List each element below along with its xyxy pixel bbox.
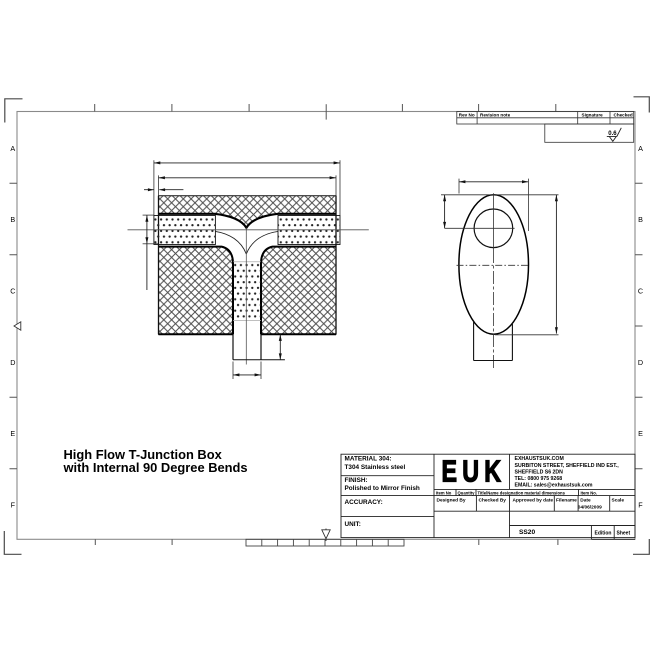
- svg-text:B: B: [638, 215, 643, 224]
- svg-text:Designed By: Designed By: [437, 498, 466, 504]
- svg-text:D: D: [638, 358, 643, 367]
- svg-text:Title/Name designation materia: Title/Name designation material dimensio…: [478, 490, 566, 495]
- svg-text:Item No.: Item No.: [581, 490, 598, 495]
- svg-text:A: A: [638, 144, 643, 153]
- svg-text:T304 Stainless steel: T304 Stainless steel: [345, 464, 406, 471]
- svg-text:EXHAUSTSUK.COM: EXHAUSTSUK.COM: [515, 456, 564, 462]
- svg-text:E: E: [10, 429, 15, 438]
- svg-text:Filename: Filename: [556, 498, 577, 504]
- svg-text:C: C: [638, 286, 643, 295]
- svg-text:Sheet: Sheet: [617, 531, 631, 537]
- svg-text:B: B: [10, 215, 15, 224]
- svg-text:Edition: Edition: [595, 531, 612, 537]
- svg-text:Approved by date: Approved by date: [513, 498, 554, 504]
- svg-text:with Internal 90 Degree Bends: with Internal 90 Degree Bends: [63, 460, 248, 475]
- svg-text:SS20: SS20: [519, 529, 535, 536]
- svg-text:ACCURACY:: ACCURACY:: [345, 499, 383, 506]
- svg-text:FINISH:: FINISH:: [345, 477, 368, 484]
- svg-text:Scale: Scale: [612, 498, 625, 504]
- svg-text:04/06/2009: 04/06/2009: [578, 505, 602, 511]
- svg-text:Rev No: Rev No: [459, 112, 475, 117]
- svg-text:Date: Date: [580, 498, 591, 504]
- svg-text:SHEFFIELD S6 2DN: SHEFFIELD S6 2DN: [515, 470, 564, 476]
- svg-text:A: A: [10, 144, 15, 153]
- svg-text:Quantity: Quantity: [458, 490, 476, 495]
- svg-text:Item No: Item No: [436, 490, 452, 495]
- svg-text:C: C: [10, 286, 15, 295]
- svg-text:Revision note: Revision note: [480, 112, 511, 117]
- svg-text:E: E: [638, 429, 643, 438]
- svg-text:F: F: [11, 500, 16, 509]
- svg-text:D: D: [10, 358, 15, 367]
- svg-text:EUK: EUK: [442, 453, 507, 488]
- svg-text:MATERIAL 304:: MATERIAL 304:: [345, 456, 392, 463]
- svg-text:Checked By: Checked By: [479, 498, 507, 504]
- svg-text:EMAIL: sales@exhaustsuk.com: EMAIL: sales@exhaustsuk.com: [515, 482, 593, 488]
- svg-text:Signature: Signature: [582, 112, 604, 117]
- svg-text:SURBITON STREET, SHEFFIELD IND: SURBITON STREET, SHEFFIELD IND EST.,: [515, 463, 620, 469]
- svg-text:F: F: [638, 500, 643, 509]
- svg-text:Polished to Mirror Finish: Polished to Mirror Finish: [345, 485, 420, 492]
- svg-text:UNIT:: UNIT:: [345, 521, 361, 528]
- svg-text:Checked: Checked: [614, 112, 633, 117]
- svg-text:TEL: 0800 975 9268: TEL: 0800 975 9268: [515, 476, 563, 482]
